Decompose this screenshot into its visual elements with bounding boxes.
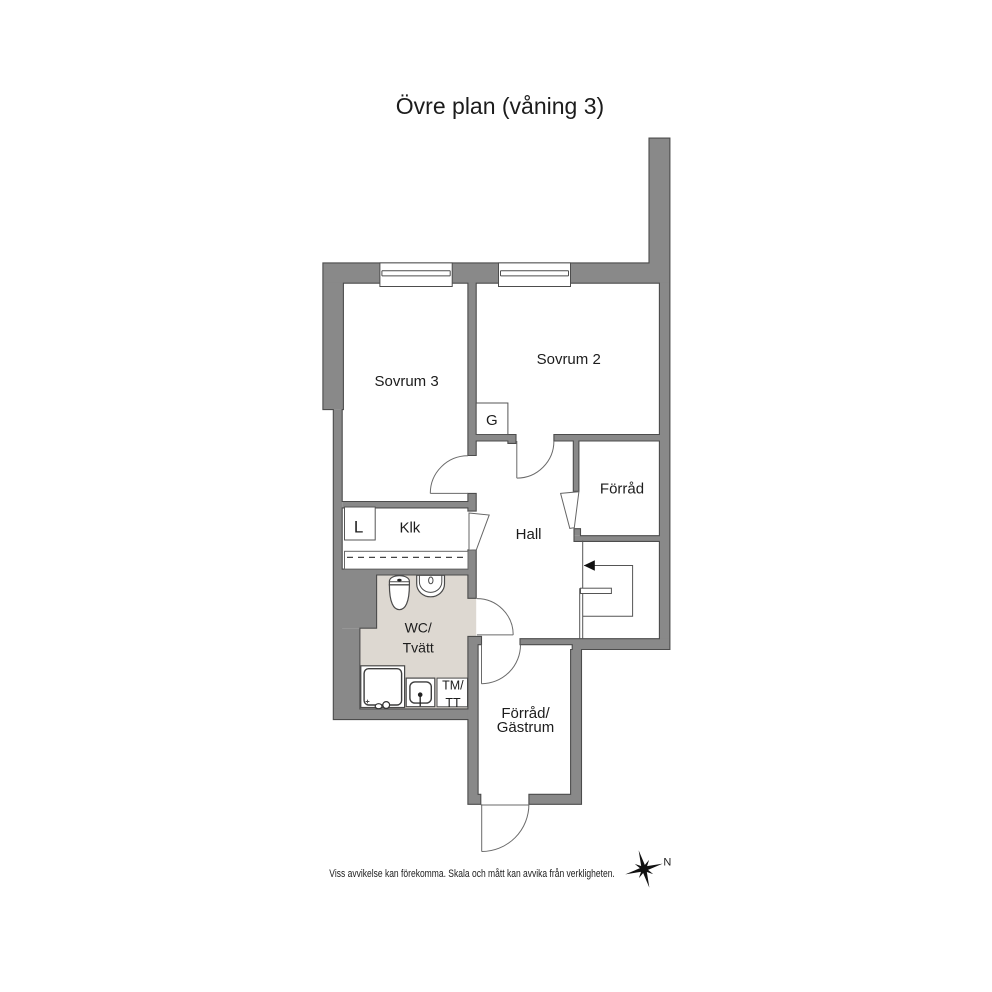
svg-text:Tvätt: Tvätt: [403, 639, 434, 655]
svg-text:Gästrum: Gästrum: [497, 719, 555, 736]
svg-text:Sovrum 3: Sovrum 3: [374, 373, 438, 390]
svg-text:Övre plan (våning 3): Övre plan (våning 3): [396, 93, 604, 119]
svg-text:G: G: [486, 412, 498, 429]
svg-text:L: L: [354, 518, 363, 537]
svg-text:Hall: Hall: [516, 526, 542, 543]
svg-text:Sovrum 2: Sovrum 2: [537, 351, 601, 368]
svg-text:N: N: [663, 856, 671, 868]
svg-text:TM/: TM/: [442, 679, 464, 693]
svg-text:TT: TT: [445, 696, 461, 710]
svg-text:Viss avvikelse kan förekomma.: Viss avvikelse kan förekomma. Skala och …: [329, 868, 615, 880]
svg-text:Förråd: Förråd: [600, 480, 644, 497]
svg-text:WC/: WC/: [405, 619, 432, 635]
svg-text:Klk: Klk: [399, 520, 420, 537]
